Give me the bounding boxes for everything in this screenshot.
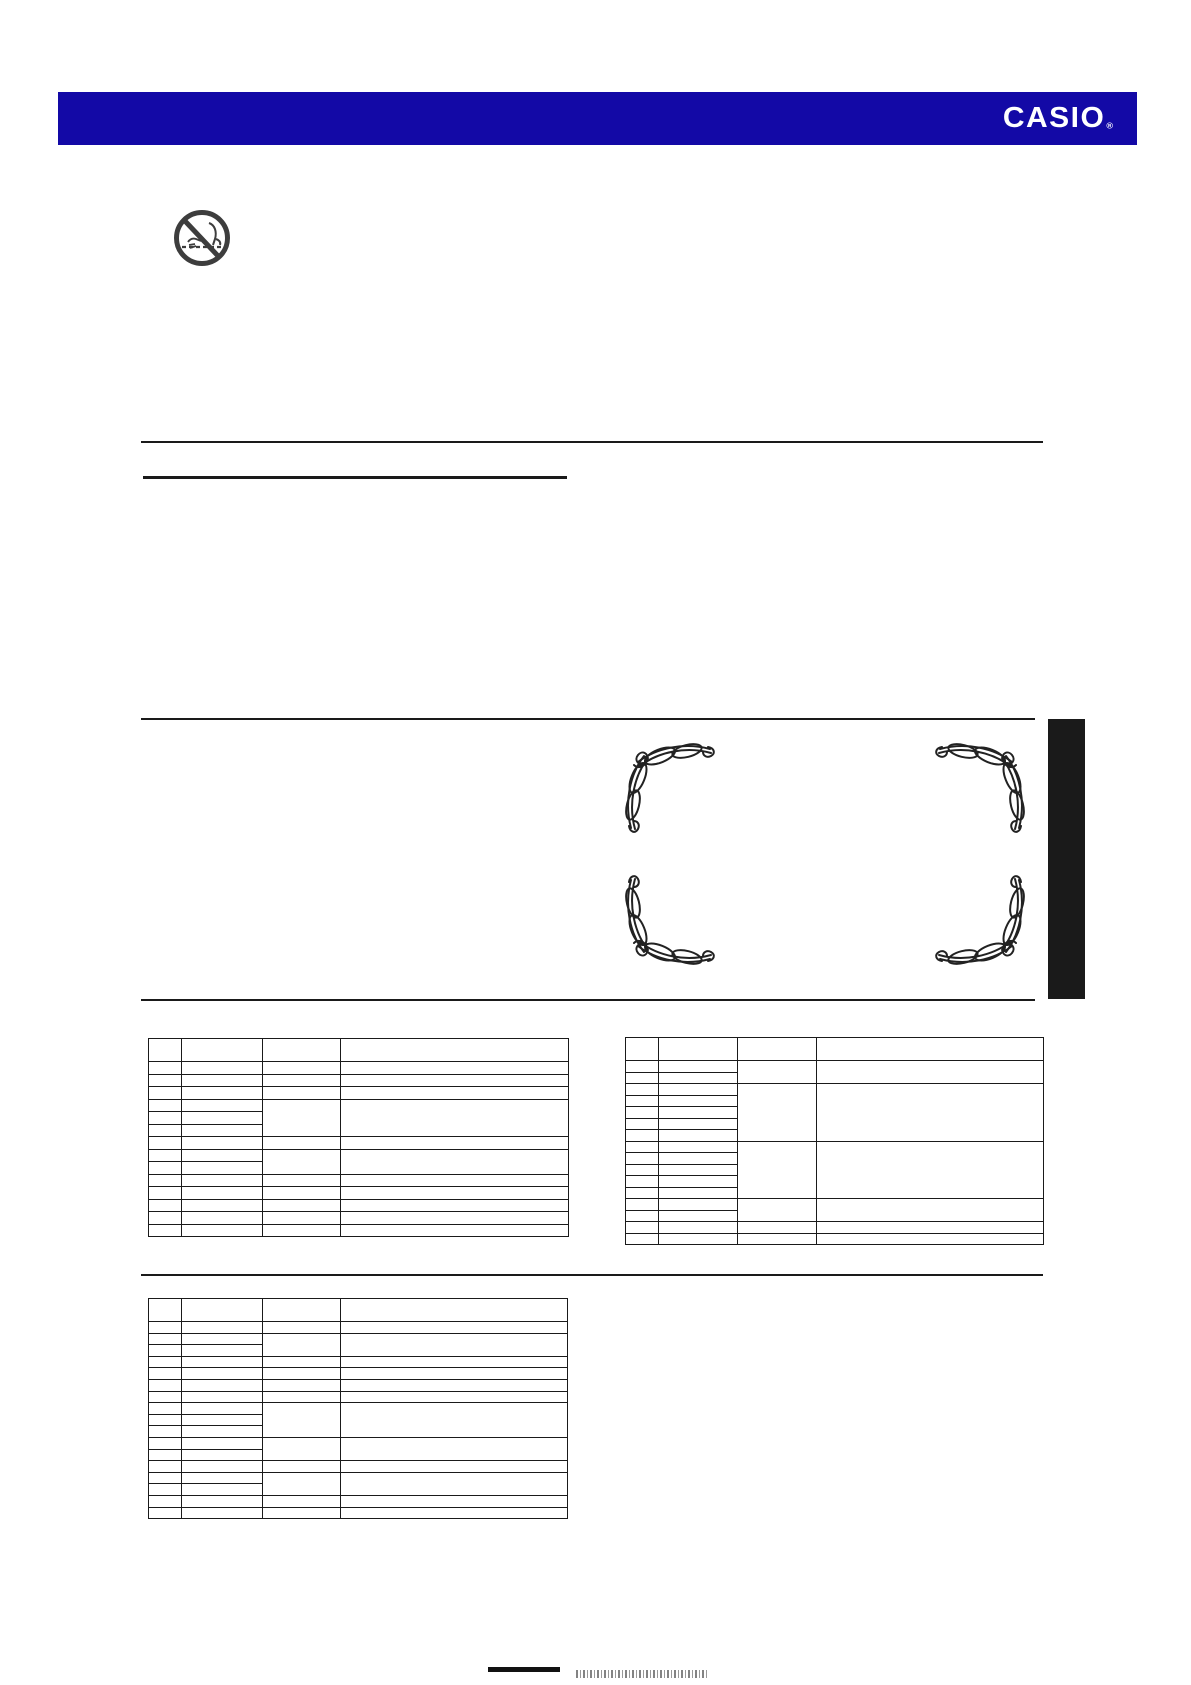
- table-cell: [738, 1233, 817, 1245]
- table-cell: [182, 1333, 263, 1345]
- table-cell: [149, 1368, 182, 1380]
- table-cell: [626, 1061, 659, 1073]
- table-header-cell: [182, 1299, 263, 1322]
- table-header-cell: [182, 1039, 263, 1062]
- table-header-cell: [817, 1038, 1044, 1061]
- table-cell: [149, 1495, 182, 1507]
- brand-text: CASIO: [1003, 102, 1106, 133]
- ornament-section-top-rule: [141, 718, 1035, 720]
- table-row: [626, 1233, 1044, 1245]
- table-cell: [182, 1414, 263, 1426]
- table-cell: [149, 1403, 182, 1415]
- table-cell: [149, 1074, 182, 1087]
- header-bar: CASIO®: [58, 92, 1137, 145]
- table-cell: [659, 1107, 738, 1119]
- table-cell: [341, 1379, 568, 1391]
- registered-trademark-icon: ®: [1106, 121, 1113, 131]
- table-cell: [626, 1107, 659, 1119]
- table-cell: [263, 1174, 341, 1187]
- tables-divider-rule: [141, 1274, 1043, 1276]
- do-not-pry-open-case-icon: [172, 208, 232, 268]
- table-cell: [626, 1222, 659, 1234]
- table-cell: [149, 1149, 182, 1162]
- ornament-section-bottom-rule: [141, 999, 1035, 1001]
- heading-underline-rule: [143, 476, 567, 479]
- table-cell: [341, 1368, 568, 1380]
- table-row: [149, 1368, 568, 1380]
- table-cell-merged: [817, 1084, 1044, 1142]
- table-cell: [149, 1087, 182, 1100]
- table-cell: [149, 1322, 182, 1334]
- table-cell: [182, 1345, 263, 1357]
- table-cell: [626, 1164, 659, 1176]
- table-cell: [659, 1153, 738, 1165]
- table-row: [626, 1061, 1044, 1073]
- table-cell: [263, 1062, 341, 1075]
- table-cell: [182, 1137, 263, 1150]
- table-header-row: [149, 1039, 569, 1062]
- table-cell: [149, 1112, 182, 1125]
- table-cell: [263, 1074, 341, 1087]
- table-cell: [263, 1212, 341, 1225]
- table-cell: [149, 1137, 182, 1150]
- table-cell: [341, 1224, 569, 1237]
- table-cell: [263, 1137, 341, 1150]
- table-cell: [182, 1449, 263, 1461]
- casio-logo: CASIO®: [1003, 102, 1113, 142]
- corner-flourish-icon: [622, 740, 717, 837]
- table-cell: [149, 1484, 182, 1496]
- corner-flourish-icon: [933, 740, 1028, 837]
- table-row: [626, 1199, 1044, 1211]
- table-cell: [263, 1187, 341, 1200]
- table-cell-merged: [341, 1437, 568, 1460]
- table-cell: [626, 1141, 659, 1153]
- table-cell: [341, 1087, 569, 1100]
- table-row: [149, 1099, 569, 1112]
- table-cell: [659, 1141, 738, 1153]
- table-cell-merged: [341, 1149, 569, 1174]
- table-cell: [738, 1222, 817, 1234]
- table-cell: [149, 1449, 182, 1461]
- footer-rule-segment: [488, 1667, 560, 1672]
- table-cell: [182, 1162, 263, 1175]
- table-header-row: [149, 1299, 568, 1322]
- table-cell: [182, 1212, 263, 1225]
- table-cell: [149, 1356, 182, 1368]
- table-cell-merged: [341, 1099, 569, 1137]
- table-row: [149, 1199, 569, 1212]
- table-cell: [263, 1495, 341, 1507]
- table-header-cell: [659, 1038, 738, 1061]
- table-row: [149, 1495, 568, 1507]
- table-row: [149, 1333, 568, 1345]
- table-cell: [182, 1507, 263, 1519]
- table-row: [626, 1141, 1044, 1153]
- table-cell: [182, 1124, 263, 1137]
- table-cell: [659, 1210, 738, 1222]
- table-cell-merged: [263, 1437, 341, 1460]
- table-cell-merged: [817, 1141, 1044, 1199]
- table-row: [149, 1391, 568, 1403]
- table-cell: [659, 1199, 738, 1211]
- table-row: [149, 1472, 568, 1484]
- table-cell: [626, 1199, 659, 1211]
- table-cell: [817, 1233, 1044, 1245]
- table-cell: [149, 1224, 182, 1237]
- table-cell: [182, 1461, 263, 1473]
- table-cell-merged: [738, 1061, 817, 1084]
- table-cell: [149, 1333, 182, 1345]
- table-header-cell: [341, 1299, 568, 1322]
- table-row: [149, 1379, 568, 1391]
- table-cell: [626, 1153, 659, 1165]
- table-cell: [182, 1437, 263, 1449]
- table-header-cell: [149, 1299, 182, 1322]
- table-cell: [182, 1322, 263, 1334]
- table-cell: [149, 1187, 182, 1200]
- table-header-row: [626, 1038, 1044, 1061]
- table-cell-merged: [341, 1333, 568, 1356]
- table-cell-merged: [738, 1084, 817, 1142]
- table-cell: [149, 1199, 182, 1212]
- table-cell: [182, 1174, 263, 1187]
- table-cell: [263, 1322, 341, 1334]
- table-cell: [817, 1222, 1044, 1234]
- table-cell: [263, 1087, 341, 1100]
- table-cell: [149, 1426, 182, 1438]
- table-cell: [341, 1174, 569, 1187]
- table-header-cell: [341, 1039, 569, 1062]
- table-cell: [149, 1162, 182, 1175]
- table-cell: [149, 1379, 182, 1391]
- table-cell: [182, 1149, 263, 1162]
- table-row: [149, 1174, 569, 1187]
- table-cell: [659, 1222, 738, 1234]
- table-cell: [341, 1137, 569, 1150]
- table-cell-merged: [817, 1199, 1044, 1222]
- table-cell: [182, 1472, 263, 1484]
- table-cell: [149, 1437, 182, 1449]
- table-cell: [182, 1484, 263, 1496]
- table-cell: [263, 1224, 341, 1237]
- table-cell: [182, 1426, 263, 1438]
- spec-table-top-right: [625, 1037, 1044, 1245]
- table-row: [149, 1149, 569, 1162]
- table-header-cell: [149, 1039, 182, 1062]
- table-cell: [626, 1210, 659, 1222]
- table-row: [149, 1212, 569, 1225]
- table-row: [149, 1087, 569, 1100]
- table-cell-merged: [817, 1061, 1044, 1084]
- table-cell: [659, 1072, 738, 1084]
- table-cell: [263, 1368, 341, 1380]
- table-cell: [182, 1495, 263, 1507]
- corner-flourish-icon: [622, 871, 717, 968]
- table-cell: [659, 1187, 738, 1199]
- table-cell: [341, 1391, 568, 1403]
- table-cell: [149, 1345, 182, 1357]
- table-cell: [341, 1507, 568, 1519]
- table-cell: [341, 1356, 568, 1368]
- table-cell: [149, 1391, 182, 1403]
- table-cell: [263, 1461, 341, 1473]
- spec-table: [148, 1298, 568, 1519]
- table-row: [149, 1224, 569, 1237]
- table-cell: [182, 1224, 263, 1237]
- table-cell: [659, 1164, 738, 1176]
- table-cell: [149, 1414, 182, 1426]
- table-cell: [341, 1187, 569, 1200]
- table-cell: [263, 1199, 341, 1212]
- table-header-cell: [263, 1299, 341, 1322]
- table-cell: [149, 1212, 182, 1225]
- table-cell-merged: [738, 1141, 817, 1199]
- manual-page: CASIO®: [0, 0, 1191, 1685]
- table-cell: [149, 1124, 182, 1137]
- table-cell-merged: [263, 1099, 341, 1137]
- footer-fine-print-illegible: [576, 1670, 708, 1678]
- table-cell: [626, 1130, 659, 1142]
- table-row: [626, 1222, 1044, 1234]
- table-row: [626, 1084, 1044, 1096]
- table-row: [149, 1074, 569, 1087]
- table-row: [149, 1322, 568, 1334]
- table-row: [149, 1187, 569, 1200]
- table-row: [149, 1356, 568, 1368]
- table-cell: [182, 1112, 263, 1125]
- table-cell: [182, 1062, 263, 1075]
- table-cell: [626, 1187, 659, 1199]
- section-divider-rule: [141, 441, 1043, 443]
- table-cell: [341, 1062, 569, 1075]
- table-cell: [149, 1472, 182, 1484]
- table-cell: [626, 1072, 659, 1084]
- table-cell: [263, 1356, 341, 1368]
- page-edge-index-tab: [1048, 719, 1085, 999]
- table-cell: [659, 1061, 738, 1073]
- table-cell: [626, 1084, 659, 1096]
- table-cell: [626, 1176, 659, 1188]
- table-cell: [182, 1099, 263, 1112]
- table-cell-merged: [341, 1403, 568, 1438]
- table-cell: [263, 1507, 341, 1519]
- table-cell: [341, 1074, 569, 1087]
- table-row: [149, 1403, 568, 1415]
- table-header-cell: [263, 1039, 341, 1062]
- table-cell: [149, 1062, 182, 1075]
- table-cell: [659, 1130, 738, 1142]
- table-cell: [182, 1199, 263, 1212]
- table-cell: [626, 1118, 659, 1130]
- table-cell-merged: [738, 1199, 817, 1222]
- table-cell: [149, 1174, 182, 1187]
- table-cell: [626, 1095, 659, 1107]
- table-cell: [341, 1461, 568, 1473]
- table-cell: [263, 1391, 341, 1403]
- table-header-cell: [738, 1038, 817, 1061]
- table-cell: [341, 1495, 568, 1507]
- table-cell: [659, 1233, 738, 1245]
- table-cell: [263, 1379, 341, 1391]
- table-cell: [182, 1087, 263, 1100]
- table-cell-merged: [263, 1403, 341, 1438]
- table-cell: [149, 1461, 182, 1473]
- table-cell: [182, 1356, 263, 1368]
- table-cell: [182, 1379, 263, 1391]
- table-row: [149, 1137, 569, 1150]
- table-cell-merged: [263, 1333, 341, 1356]
- table-cell: [149, 1507, 182, 1519]
- table-cell: [182, 1074, 263, 1087]
- spec-table-top-left: [148, 1038, 569, 1237]
- table-cell: [659, 1118, 738, 1130]
- table-cell: [182, 1187, 263, 1200]
- table-cell-merged: [263, 1472, 341, 1495]
- table-header-cell: [626, 1038, 659, 1061]
- table-cell: [659, 1176, 738, 1188]
- table-row: [149, 1437, 568, 1449]
- table-cell: [341, 1212, 569, 1225]
- spec-table-bottom-left: [148, 1298, 568, 1519]
- table-cell: [626, 1233, 659, 1245]
- table-cell: [182, 1368, 263, 1380]
- table-row: [149, 1461, 568, 1473]
- table-cell: [659, 1084, 738, 1096]
- spec-table: [148, 1038, 569, 1237]
- table-cell: [341, 1199, 569, 1212]
- table-row: [149, 1507, 568, 1519]
- table-row: [149, 1062, 569, 1075]
- spec-table: [625, 1037, 1044, 1245]
- table-cell-merged: [263, 1149, 341, 1174]
- table-cell: [182, 1403, 263, 1415]
- table-cell: [182, 1391, 263, 1403]
- table-cell: [149, 1099, 182, 1112]
- table-cell: [659, 1095, 738, 1107]
- corner-flourish-icon: [933, 871, 1028, 968]
- table-cell: [341, 1322, 568, 1334]
- table-cell-merged: [341, 1472, 568, 1495]
